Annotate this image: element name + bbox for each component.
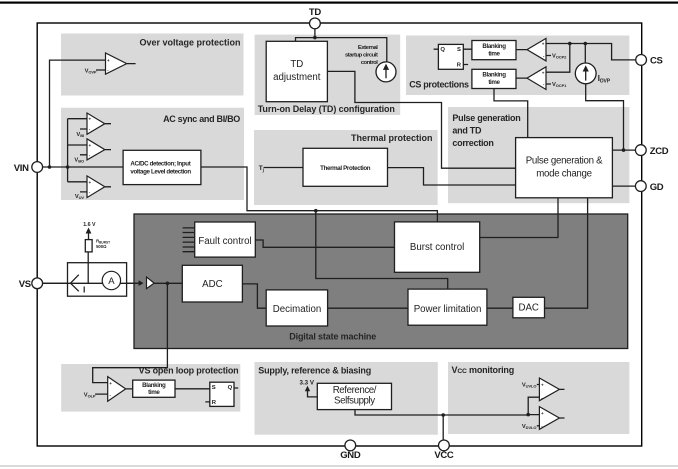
svg-text:CS: CS [650,56,663,67]
svg-text:I: I [83,285,85,295]
svg-text:Digital state machine: Digital state machine [289,331,376,341]
svg-text:S: S [457,47,461,53]
svg-text:+: + [542,70,545,75]
svg-text:Thermal protection: Thermal protection [351,133,433,143]
svg-text:voltage Level detection: voltage Level detection [130,169,191,176]
svg-text:VCC: VCC [434,450,454,461]
svg-text:AC sync and BI/BO: AC sync and BI/BO [163,114,240,124]
svg-text:VUVLO: VUVLO [522,383,537,389]
svg-text:1.6 V: 1.6 V [83,222,96,228]
svg-text:control: control [361,60,379,66]
svg-text:External: External [358,45,378,51]
svg-text:VBI: VBI [76,132,84,138]
svg-text:DAC: DAC [518,303,538,314]
svg-text:Thermal Protection: Thermal Protection [320,165,371,172]
svg-text:Pulse generation &: Pulse generation & [526,155,603,166]
svg-text:Blanking: Blanking [482,72,506,79]
svg-text:+: + [107,58,110,63]
svg-text:VBO: VBO [74,157,84,163]
svg-text:VS: VS [19,279,31,290]
svg-text:Burst control: Burst control [410,242,464,253]
svg-text:time: time [148,389,160,396]
svg-text:GND: GND [340,450,361,461]
svg-text:3.3 V: 3.3 V [300,380,315,387]
svg-text:adjustment: adjustment [273,72,321,83]
svg-text:AC/DC detection; Input: AC/DC detection; Input [130,160,190,167]
svg-text:+: + [541,383,544,388]
svg-text:ADC: ADC [202,279,222,290]
svg-text:+: + [89,143,92,148]
svg-text:TD: TD [290,59,303,70]
svg-text:500Ω: 500Ω [96,244,107,249]
svg-text:+: + [541,411,544,416]
svg-text:Turn-on Delay (TD) configurati: Turn-on Delay (TD) configuration [258,104,395,114]
svg-text:VOCP1: VOCP1 [552,82,567,88]
svg-text:Over voltage protection: Over voltage protection [139,37,240,47]
svg-text:Power limitation: Power limitation [414,304,482,315]
svg-text:time: time [488,79,500,86]
svg-text:CS protections: CS protections [409,80,469,90]
svg-text:+: + [542,42,545,47]
svg-text:time: time [488,50,500,57]
svg-text:Decimation: Decimation [273,304,321,315]
svg-text:VOVP: VOVP [85,69,97,75]
svg-text:correction: correction [452,138,493,148]
svg-text:Pulse generation: Pulse generation [452,113,520,123]
svg-text:TD: TD [309,7,322,18]
svg-text:Supply, reference & biasing: Supply, reference & biasing [258,365,371,375]
svg-text:and TD: and TD [452,126,482,136]
svg-text:GD: GD [650,182,664,193]
svg-text:+: + [89,117,92,122]
svg-text:startup circuit: startup circuit [345,53,378,59]
svg-text:A: A [108,276,115,287]
svg-text:VOCP2: VOCP2 [552,53,567,59]
svg-text:VUV: VUV [75,194,85,200]
svg-text:mode change: mode change [536,169,591,180]
svg-text:VIN: VIN [14,163,29,174]
svg-text:Selfsupply: Selfsupply [334,396,375,407]
svg-text:Blanking: Blanking [142,382,166,389]
svg-text:+: + [89,180,92,185]
svg-text:ZCD: ZCD [650,146,669,157]
svg-text:VOLP: VOLP [84,392,96,398]
svg-text:Blanking: Blanking [482,43,506,50]
svg-text:+: + [109,381,112,386]
svg-text:VDVLO: VDVLO [522,424,537,430]
svg-text:S: S [212,385,216,391]
svg-text:Reference/: Reference/ [333,385,377,396]
svg-text:Fault control: Fault control [198,236,251,247]
